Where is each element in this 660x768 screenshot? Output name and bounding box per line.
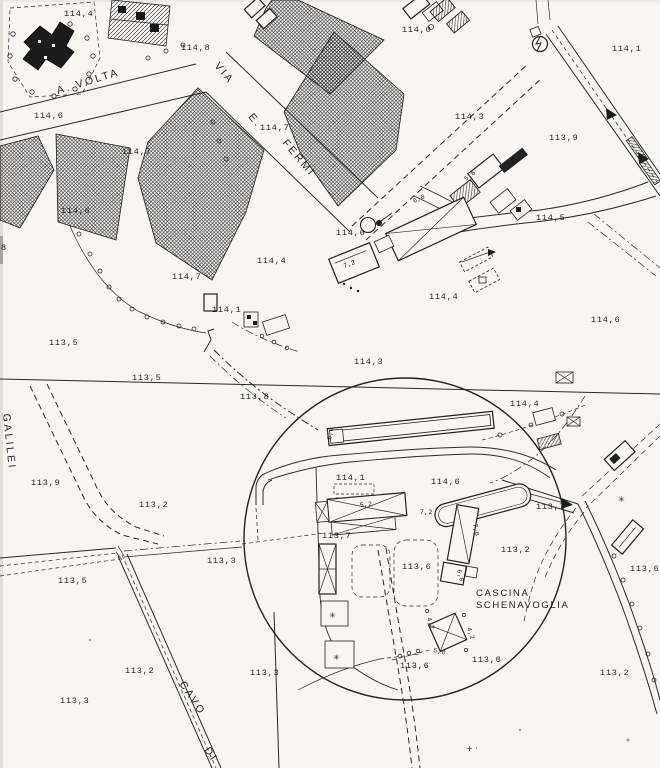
plot-outline xyxy=(352,545,390,597)
building-dimension-label: 6,0 xyxy=(412,193,426,205)
spot-elevation-label: 114,4 xyxy=(429,292,459,302)
spot-elevation-label: 113,2 xyxy=(125,666,155,676)
spot-elevation-label: 113,3 xyxy=(60,696,90,706)
oval-enclosure xyxy=(433,481,534,529)
spot-elevation-label: 114,4 xyxy=(257,256,287,266)
building-dimension-label: 5,2 xyxy=(359,501,372,509)
spot-elevation-label: 113,3 xyxy=(207,556,237,566)
spot-elevation-label: 114,8 xyxy=(181,43,211,53)
spot-elevation-label: 114,4 xyxy=(64,9,94,19)
barn-x-small xyxy=(429,613,467,651)
building xyxy=(604,441,635,471)
spot-elevation-label: 114,3 xyxy=(455,112,485,122)
building xyxy=(499,148,528,174)
map-mark: + · xyxy=(466,744,478,753)
place-name-cascina: SCHENAVOGLIA xyxy=(476,600,569,611)
map-mark: ✳ xyxy=(333,653,340,662)
building-dimension-label: 4,2 xyxy=(425,616,436,630)
street-name-label: VIA xyxy=(212,60,237,86)
spot-elevation-label: 114,7 xyxy=(260,123,290,133)
spot-elevation-label: 113,6 xyxy=(630,564,660,574)
map-canvas: 114,4114,8114,0114,1114,3113,9114,6114,7… xyxy=(0,0,660,768)
x-roof-building xyxy=(386,197,477,261)
spot-elevation-label: 113,3 xyxy=(250,668,280,678)
canal-cavo xyxy=(127,554,221,768)
spot-elevation-label: 114,3 xyxy=(354,357,384,367)
road-galilei xyxy=(47,384,164,536)
spot-elevation-label: 113,9 xyxy=(31,478,61,488)
hatched-block xyxy=(56,134,130,240)
benchmark-symbol xyxy=(556,372,573,383)
road-volta-edge xyxy=(0,64,196,112)
map-mark: ✳ xyxy=(618,495,625,504)
spot-elevation-label: 114,6 xyxy=(61,206,91,216)
spot-elevation-label: 113,2 xyxy=(139,500,169,510)
spot-elevation-label: 113,5 xyxy=(132,373,162,383)
barn-x xyxy=(315,493,408,537)
spot-elevation-label: 114,0 xyxy=(402,25,432,35)
place-name-cascina: CASCINA xyxy=(476,588,529,599)
dark-building xyxy=(23,22,74,70)
spot-elevation-label: 113,5 xyxy=(49,338,79,348)
shed-outline xyxy=(460,247,493,272)
plot-outline xyxy=(394,540,438,606)
spot-elevation-label: 113,2 xyxy=(501,545,531,555)
benchmark-symbol xyxy=(567,417,580,426)
flag-symbol xyxy=(204,329,214,352)
building xyxy=(612,520,644,554)
yard-outline xyxy=(334,484,374,494)
spot-elevation-label: 113,0 xyxy=(472,655,502,665)
canal-cavo xyxy=(118,556,212,768)
spot-elevation-label: 114,6 xyxy=(34,111,64,121)
spot-elevation-label: 113,6 xyxy=(400,661,430,671)
street-name-label: A. VOLTA xyxy=(55,66,121,96)
spot-elevation-label: 114,6 xyxy=(336,228,366,238)
spot-elevation-label: 114,7 xyxy=(172,272,202,282)
spot-elevation-label: 113,2 xyxy=(600,668,630,678)
spot-elevation-label: 113,7 xyxy=(322,531,352,541)
spot-elevation-label: 113,5 xyxy=(58,576,88,586)
hatched-block xyxy=(138,88,264,280)
building-dimension-label: 7,2 xyxy=(420,509,433,516)
building xyxy=(446,11,469,33)
spot-elevation-label: 114,6 xyxy=(591,315,621,325)
building xyxy=(533,408,556,426)
spot-elevation-label: 114,1 xyxy=(612,44,642,54)
lightning-glyph xyxy=(536,37,541,51)
spot-elevation-label: 114,7 xyxy=(122,147,152,157)
spot-elevation-label: 114,1 xyxy=(212,305,242,315)
spot-elevation-label: 114,6 xyxy=(431,477,461,487)
map-mark: ✳ xyxy=(329,611,336,620)
spot-elevation-label: 113,7 xyxy=(536,502,566,512)
spot-elevation-label: 114,4 xyxy=(510,399,540,409)
building-dimension-label: 5,8 xyxy=(433,647,447,656)
spot-elevation-label: 8 xyxy=(1,243,7,253)
spot-elevation-label: 114,1 xyxy=(336,473,366,483)
spot-elevation-label: 113,6 xyxy=(402,562,432,572)
building xyxy=(537,433,561,449)
hatched-block xyxy=(0,136,54,228)
scanned-map: 114,4114,8114,0114,1114,3113,9114,6114,7… xyxy=(0,0,660,768)
building xyxy=(465,566,478,578)
spot-elevation-label: 113,9 xyxy=(549,133,579,143)
long-stable-building xyxy=(327,411,494,445)
road-galilei xyxy=(30,386,158,544)
street-name-label: DI xyxy=(202,745,221,764)
spot-elevation-label: 114,5 xyxy=(536,213,566,223)
spot-elevation-label: 113,8 xyxy=(240,392,270,402)
building xyxy=(262,315,289,336)
row-houses xyxy=(108,0,170,46)
